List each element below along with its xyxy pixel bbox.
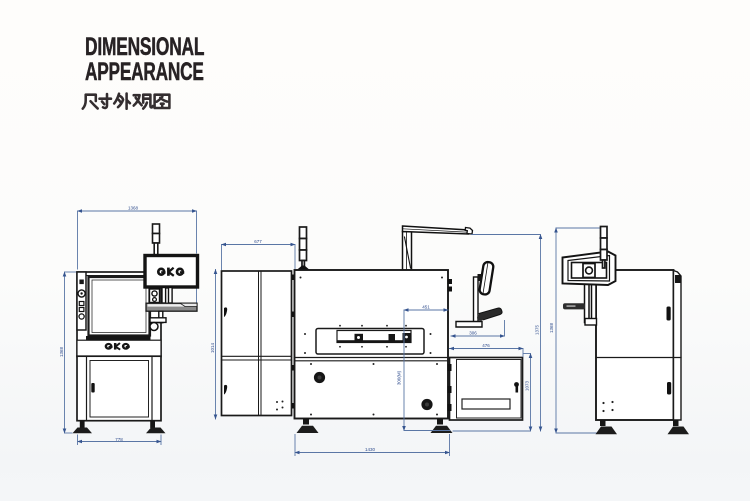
svg-text:1430: 1430 [365, 447, 376, 452]
svg-text:1375: 1375 [535, 324, 540, 335]
svg-text:1073: 1073 [525, 380, 530, 391]
svg-text:APPEARANCE: APPEARANCE [85, 58, 204, 86]
svg-text:451: 451 [422, 305, 430, 310]
svg-text:306: 306 [469, 331, 477, 336]
svg-text:1368: 1368 [128, 206, 139, 211]
svg-text:300(M): 300(M) [397, 370, 402, 385]
svg-text:DIMENSIONAL: DIMENSIONAL [85, 33, 204, 61]
svg-text:476: 476 [482, 343, 490, 348]
svg-text:1368: 1368 [549, 322, 554, 333]
svg-text:1014: 1014 [210, 342, 215, 353]
svg-text:1368: 1368 [59, 346, 64, 357]
svg-text:677: 677 [254, 239, 262, 244]
svg-text:778: 778 [115, 437, 123, 442]
